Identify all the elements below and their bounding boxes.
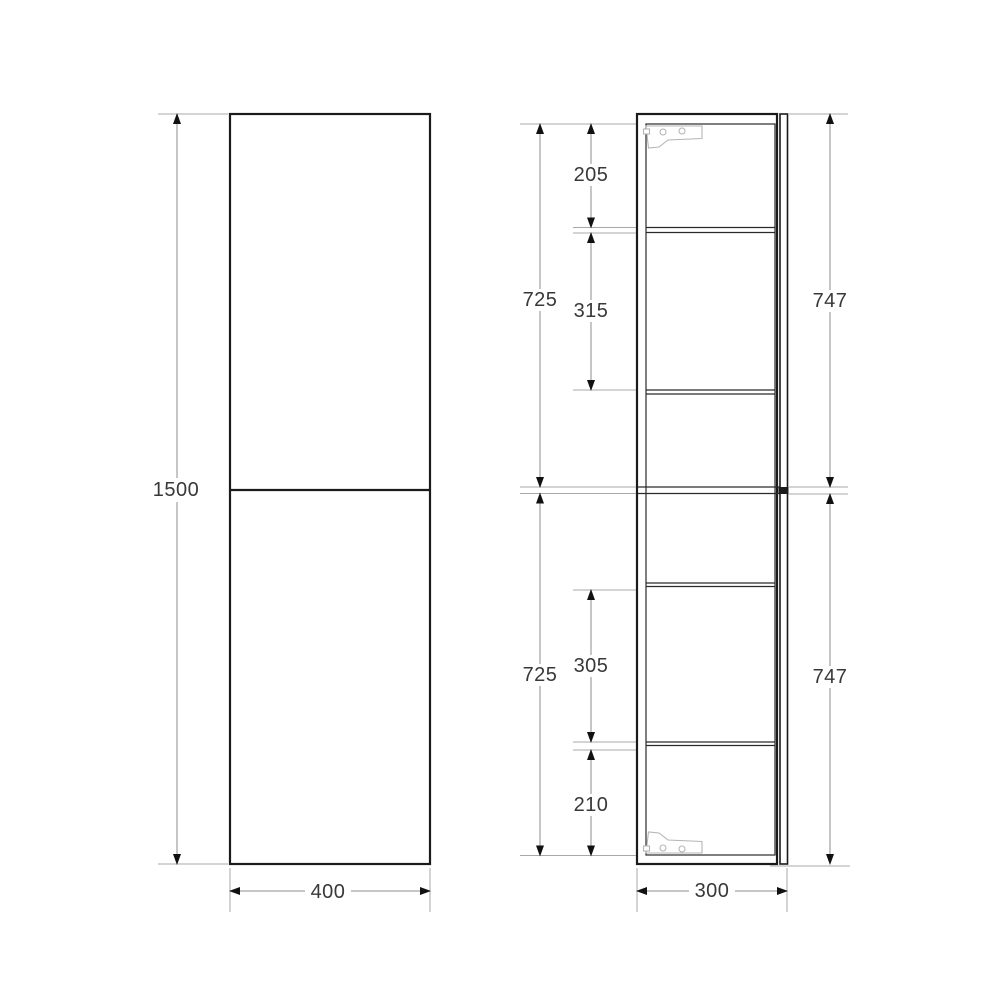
side-carcass-outline	[637, 114, 777, 864]
front-view: 1500 400	[149, 114, 430, 912]
dim-label-overall-width: 400	[311, 881, 346, 903]
dim-label-compartment-4: 210	[574, 794, 609, 816]
dim-label-overall-depth: 300	[695, 880, 730, 902]
side-view: 205 315 305 210 725 725 747 747 300	[518, 114, 852, 912]
dim-label-upper-left-total: 725	[523, 289, 558, 311]
dim-label-lower-left-total: 725	[523, 664, 558, 686]
dim-label-lower-right-total: 747	[813, 666, 848, 688]
dim-label-overall-height: 1500	[153, 479, 200, 501]
dim-label-compartment-1: 205	[574, 164, 609, 186]
cabinet-dimension-drawing: 1500 400	[0, 0, 1000, 1000]
door-gap-mark	[779, 487, 789, 494]
dim-label-compartment-2: 315	[574, 300, 609, 322]
dim-label-compartment-3: 305	[574, 655, 609, 677]
technical-drawing-page: 1500 400	[0, 0, 1000, 1000]
dim-label-upper-right-total: 747	[813, 290, 848, 312]
